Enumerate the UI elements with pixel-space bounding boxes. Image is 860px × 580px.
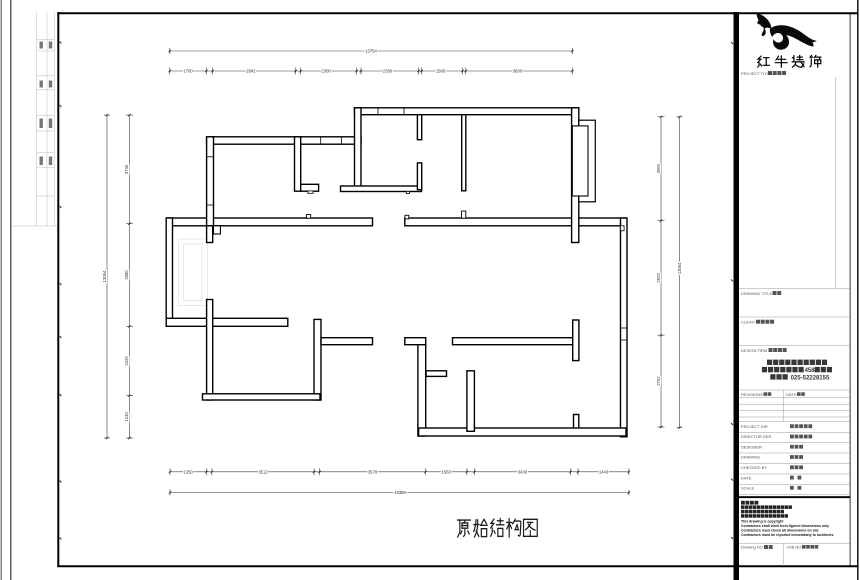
svg-text:3512: 3512 — [258, 469, 268, 474]
svg-text:DESIGNER: DESIGNER — [741, 444, 762, 449]
svg-text:JOB NO: JOB NO — [787, 545, 802, 550]
svg-text:2420: 2420 — [124, 356, 129, 366]
svg-text:1240: 1240 — [124, 411, 129, 421]
svg-text:DRAWING: DRAWING — [741, 455, 760, 460]
svg-text:2300: 2300 — [321, 69, 331, 74]
svg-text:3578: 3578 — [368, 469, 378, 474]
svg-text:025-52228155: 025-52228155 — [791, 375, 830, 381]
svg-text:Drawing NO: Drawing NO — [741, 545, 763, 550]
svg-text:1250: 1250 — [183, 469, 193, 474]
svg-text:13754: 13754 — [365, 49, 377, 54]
svg-text:PROJECT TITLE: PROJECT TITLE — [741, 71, 772, 76]
svg-text:3740: 3740 — [124, 164, 129, 174]
svg-text:2300: 2300 — [383, 69, 393, 74]
svg-text:1560: 1560 — [436, 69, 446, 74]
svg-text:DRAWING TITLE: DRAWING TITLE — [741, 291, 772, 296]
svg-text:Contractors must be reported i: Contractors must be reported immediately… — [741, 533, 833, 537]
svg-text:DESIGN FIRM: DESIGN FIRM — [741, 348, 767, 353]
svg-text:13064: 13064 — [677, 262, 682, 274]
svg-text:Contractors must check all dim: Contractors must check all dimensions on… — [741, 529, 819, 533]
svg-text:3600: 3600 — [513, 69, 523, 74]
svg-text:CLIENT: CLIENT — [741, 320, 756, 325]
svg-text:15386: 15386 — [394, 490, 406, 495]
svg-text:1700: 1700 — [183, 69, 193, 74]
svg-text:2980: 2980 — [124, 270, 129, 280]
svg-text:This drawing is copyright: This drawing is copyright — [741, 519, 784, 523]
svg-text:458: 458 — [805, 368, 816, 374]
svg-text:DATE: DATE — [741, 475, 752, 480]
svg-text:PROJECT DIR: PROJECT DIR — [741, 424, 768, 429]
svg-text:13064: 13064 — [102, 270, 107, 282]
svg-text:DIRECTOR DER: DIRECTOR DER — [741, 434, 771, 439]
svg-text:DATE: DATE — [786, 392, 797, 397]
svg-text:2923: 2923 — [656, 273, 661, 283]
svg-text:3430: 3430 — [518, 469, 528, 474]
svg-text:SCALE: SCALE — [741, 486, 754, 491]
svg-text:2842: 2842 — [246, 69, 256, 74]
svg-text:CHECKED BY: CHECKED BY — [741, 465, 767, 470]
svg-text:3600: 3600 — [656, 163, 661, 173]
svg-text:1443: 1443 — [599, 469, 609, 474]
svg-text:Contractors shall work from fi: Contractors shall work from figured dime… — [741, 524, 829, 528]
svg-text:1563: 1563 — [442, 469, 452, 474]
svg-text:REVISIONS: REVISIONS — [741, 392, 763, 397]
svg-text:2762: 2762 — [656, 376, 661, 386]
